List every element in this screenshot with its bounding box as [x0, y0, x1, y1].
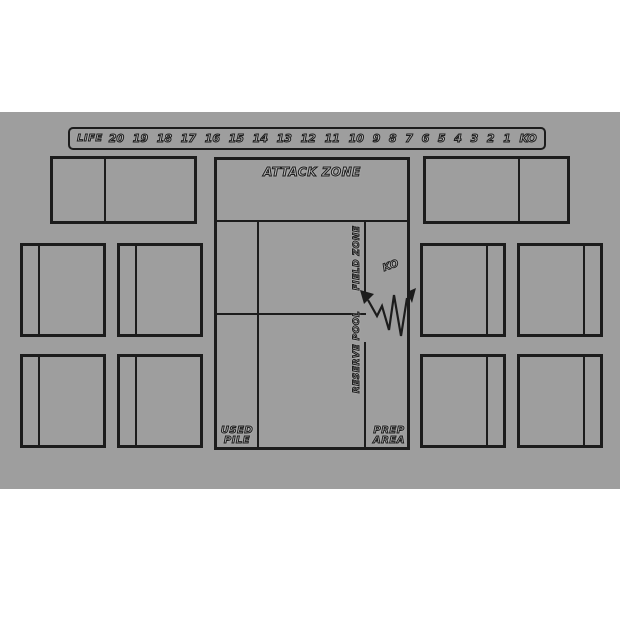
- field-reserve-divider: [217, 313, 366, 315]
- card-slot-strip-line: [583, 246, 585, 334]
- card-slot-strip-line: [486, 246, 488, 334]
- card-slot-left-2: [117, 243, 203, 337]
- life-value: KO: [520, 132, 537, 145]
- prep-area-zone: PREP AREA: [366, 426, 412, 446]
- used-pile-divider: [257, 222, 259, 447]
- life-value: 15: [229, 132, 244, 145]
- field-zone: FIELD ZONE: [352, 226, 362, 291]
- life-values: 2019181716151413121110987654321KO: [109, 132, 537, 145]
- life-label: LIFE: [77, 133, 103, 144]
- card-slot-right-3: [420, 354, 506, 448]
- playmat: LIFE 2019181716151413121110987654321KO: [0, 112, 620, 489]
- ko-zone: KO: [381, 258, 400, 274]
- card-slot-left-4: [117, 354, 203, 448]
- burst-icon: [355, 284, 417, 354]
- card-slot-right-4: [517, 354, 603, 448]
- card-slot-left-3: [20, 354, 106, 448]
- used-pile-line2: PILE: [215, 436, 259, 446]
- card-slot-right-1: [420, 243, 506, 337]
- life-value: 8: [389, 132, 397, 145]
- life-value: 6: [422, 132, 430, 145]
- prep-area-line2: AREA: [366, 436, 412, 446]
- life-value: 11: [325, 132, 340, 145]
- life-value: 9: [373, 132, 381, 145]
- card-slot-left-1: [20, 243, 106, 337]
- card-slot-strip-line: [583, 357, 585, 445]
- life-value: 2: [487, 132, 495, 145]
- life-value: 12: [301, 132, 316, 145]
- life-track: LIFE 2019181716151413121110987654321KO: [68, 127, 546, 150]
- life-value: 3: [471, 132, 479, 145]
- attack-zone-divider: [217, 220, 407, 222]
- card-slot-strip-line: [38, 246, 40, 334]
- life-value: 18: [157, 132, 172, 145]
- card-slot-strip-line: [135, 246, 137, 334]
- card-slot-strip-line: [486, 357, 488, 445]
- life-value: 19: [133, 132, 148, 145]
- life-value: 16: [205, 132, 220, 145]
- life-value: 7: [405, 132, 413, 145]
- life-value: 1: [503, 132, 511, 145]
- used-pile-zone: USED PILE: [215, 426, 259, 446]
- attack-zone: ATTACK ZONE: [217, 165, 407, 179]
- life-value: 13: [277, 132, 292, 145]
- life-value: 14: [253, 132, 268, 145]
- top-right-zone: [423, 156, 570, 224]
- life-value: 10: [349, 132, 364, 145]
- life-value: 20: [109, 132, 124, 145]
- top-left-zone: [50, 156, 197, 224]
- life-value: 5: [438, 132, 446, 145]
- playmat-page: LIFE 2019181716151413121110987654321KO: [0, 0, 620, 620]
- top-left-zone-divider: [104, 159, 106, 221]
- center-zone-block: ATTACK ZONE FIELD ZONE RESERVE POOL KO U…: [214, 157, 410, 450]
- card-slot-right-2: [517, 243, 603, 337]
- top-right-zone-divider: [518, 159, 520, 221]
- card-slot-strip-line: [38, 357, 40, 445]
- card-slot-strip-line: [135, 357, 137, 445]
- life-value: 4: [454, 132, 462, 145]
- life-value: 17: [181, 132, 196, 145]
